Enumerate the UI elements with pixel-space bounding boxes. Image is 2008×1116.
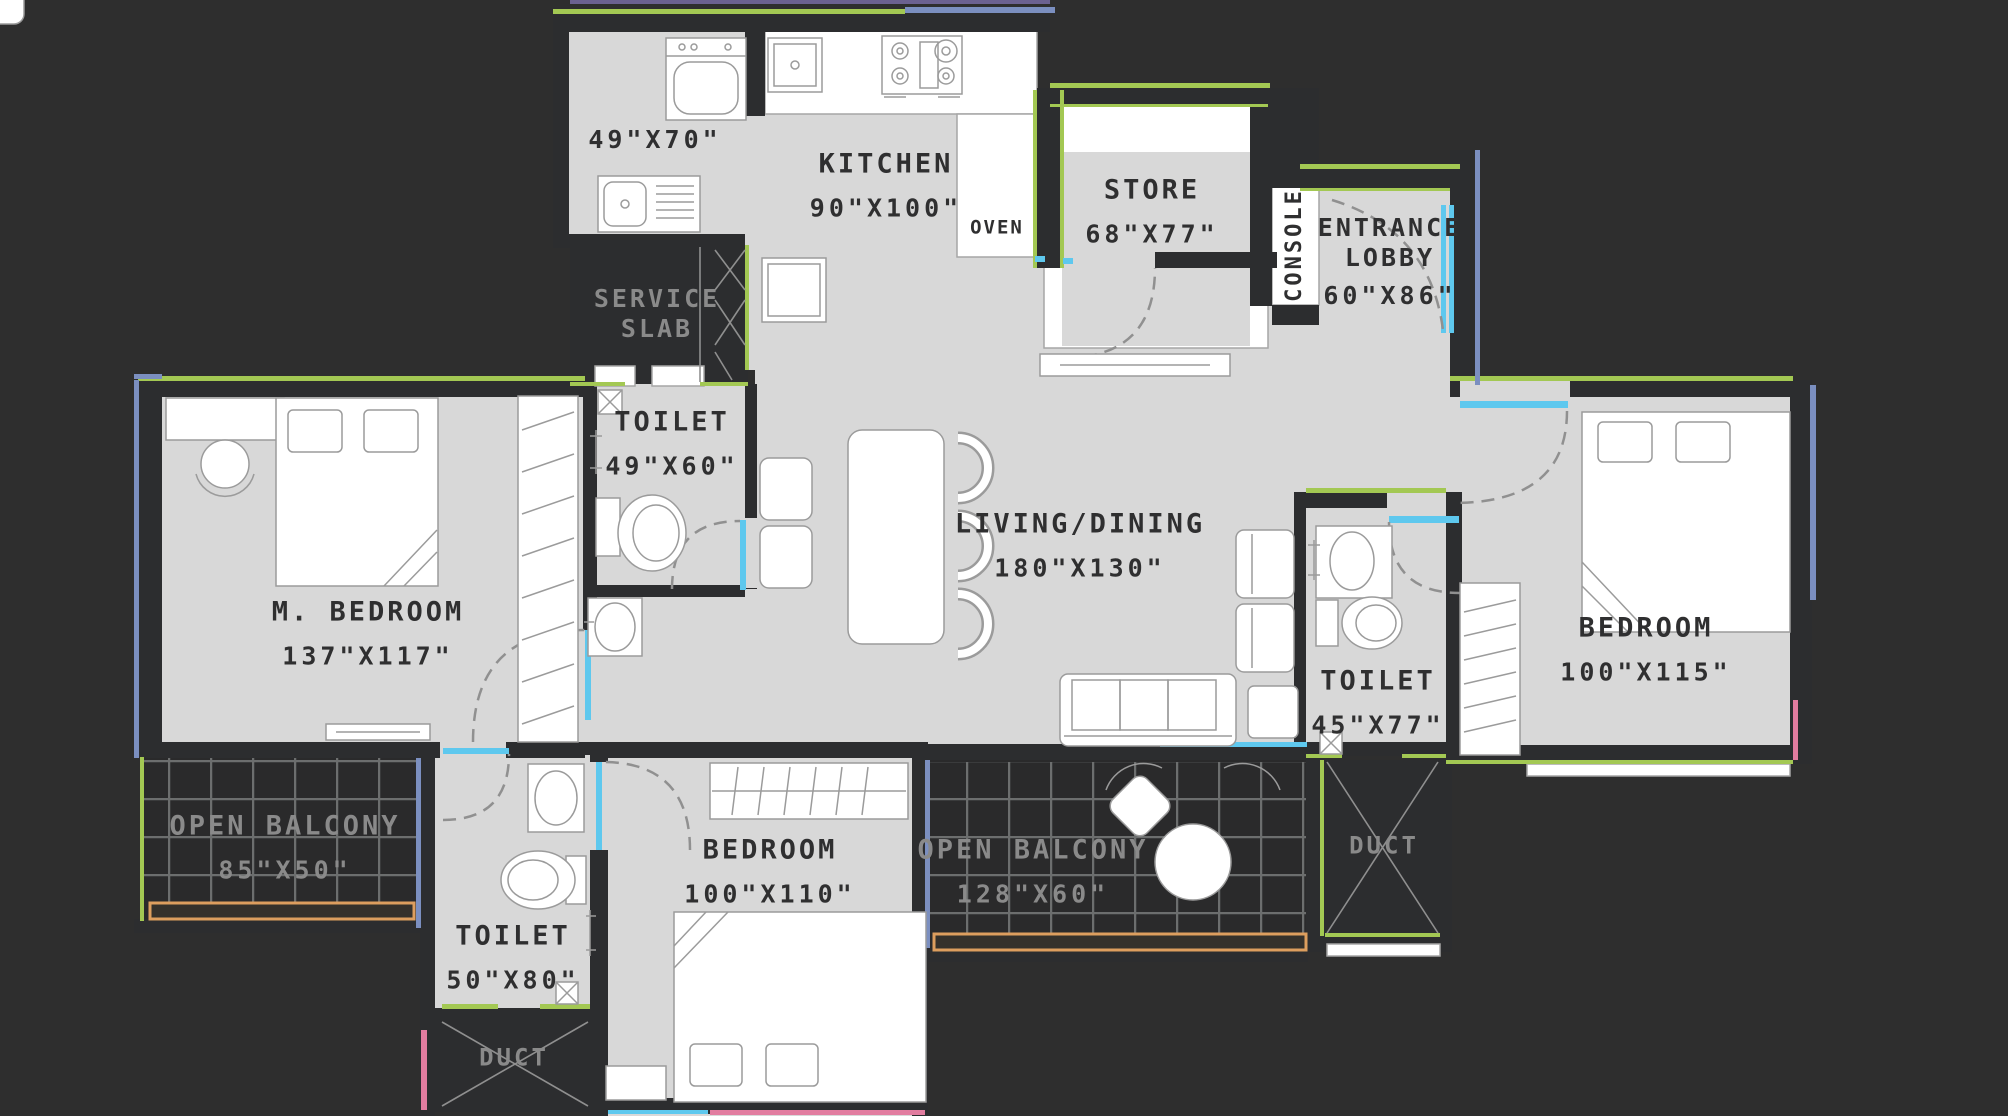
utility-sink-icon <box>598 176 700 232</box>
bedroom-right-window <box>1810 385 1816 600</box>
room-label-balcony-left: OPEN BALCONY 85"X50" <box>169 810 400 885</box>
dining-chair-icon <box>760 458 812 520</box>
room-label-store: STORE 68"X77" <box>1085 174 1218 249</box>
pillow-icon <box>288 410 342 452</box>
toilet-bottom-window <box>416 758 421 928</box>
toilet-right-door-leaf <box>1389 516 1459 523</box>
balcony-left-edge-band <box>150 903 414 919</box>
washbasin-icon <box>584 598 642 656</box>
bedroom-right-corridor <box>1306 397 1453 492</box>
bedroom-bottom-door-leaf <box>596 762 602 850</box>
washbasin-icon <box>528 764 584 832</box>
wardrobe-icon <box>518 396 578 742</box>
bedroom-right-door-leaf <box>1460 401 1568 408</box>
pillow-icon <box>1676 422 1730 462</box>
wardrobe-icon <box>710 763 908 819</box>
balcony-table-icon <box>1155 824 1231 900</box>
room-label-toilet-right: TOILET 45"X77" <box>1311 665 1444 740</box>
room-label-toilet-top: TOILET 49"X60" <box>605 406 738 481</box>
m-bedroom-window <box>134 380 139 758</box>
pillow-icon <box>364 410 418 452</box>
tv-unit-icon <box>326 724 430 740</box>
bed-icon <box>674 912 926 1102</box>
dining-table-icon <box>848 430 944 644</box>
floor-plan: 49"X70" KITCHEN 90"X100" OVEN STORE 68"X… <box>0 0 2008 1116</box>
sideboard-icon <box>1040 354 1230 376</box>
room-label-m-bedroom: M. BEDROOM 137"X117" <box>272 596 465 671</box>
room-label-duct-bottom: DUCT <box>479 1044 549 1073</box>
room-label-kitchen: KITCHEN 90"X100" <box>810 148 962 223</box>
room-label-entrance-lobby: ENTRANCE LOBBY 60"X86" <box>1301 213 1479 311</box>
dining-chair-icon <box>760 526 812 588</box>
room-label-bedroom-right: BEDROOM 100"X115" <box>1560 612 1731 687</box>
pillow-icon <box>766 1044 818 1086</box>
balcony-center-edge-band <box>934 934 1306 950</box>
room-label-oven: OVEN <box>970 217 1024 240</box>
wardrobe-icon <box>1460 583 1520 755</box>
room-label-bedroom-bottom: BEDROOM 100"X110" <box>684 834 855 909</box>
sofa-icon <box>1060 674 1236 746</box>
room-label-duct-right: DUCT <box>1349 832 1419 861</box>
bed-icon <box>1582 412 1790 632</box>
toilet-top-door-leaf <box>740 520 746 590</box>
room-label-living-dining: LIVING/DINING 180"X130" <box>955 508 1205 583</box>
washbasin-icon <box>1308 526 1392 598</box>
side-table-icon <box>1248 686 1298 738</box>
toilet-bottom-door-leaf <box>443 748 509 754</box>
top-edge-line <box>570 0 1050 4</box>
washing-machine-icon <box>666 38 746 120</box>
bedside-table-icon <box>606 1066 666 1100</box>
room-label-toilet-bottom: TOILET 50"X80" <box>446 920 579 995</box>
room-label-service-slab: SERVICE SLAB <box>557 284 757 344</box>
hob-icon <box>882 36 962 97</box>
room-label-balcony-center: OPEN BALCONY 128"X60" <box>917 834 1148 909</box>
bed-icon <box>276 398 438 586</box>
wc-icon <box>1316 597 1402 649</box>
kitchen-sink-icon <box>768 38 822 92</box>
store-door-hinge <box>1063 258 1073 264</box>
pillow-icon <box>1598 422 1652 462</box>
fridge-icon <box>762 258 826 322</box>
room-label-utility: 49"X70" <box>588 125 721 155</box>
pillow-icon <box>690 1044 742 1086</box>
